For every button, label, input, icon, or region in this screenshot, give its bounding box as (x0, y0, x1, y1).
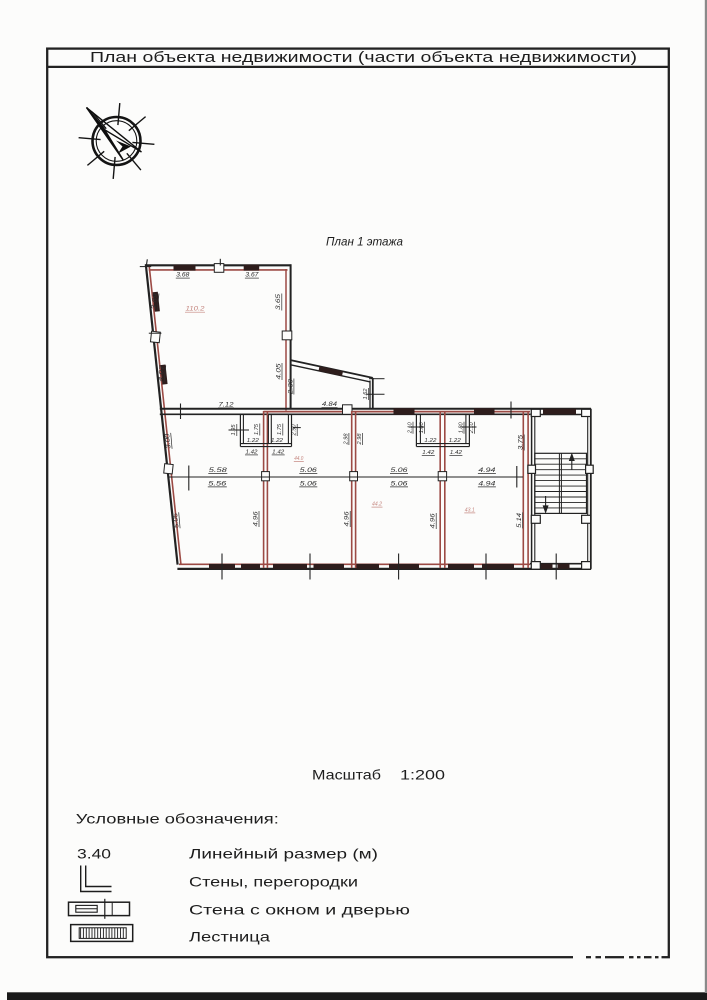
svg-text:4.96: 4.96 (252, 511, 259, 527)
svg-text:Стена с окном и дверью: Стена с окном и дверью (189, 902, 410, 918)
svg-text:4.94: 4.94 (478, 480, 495, 487)
svg-text:3.40: 3.40 (77, 847, 111, 862)
svg-text:5.06: 5.06 (300, 467, 317, 474)
svg-text:Условные обозначения:: Условные обозначения: (76, 811, 279, 827)
svg-text:2.98: 2.98 (357, 433, 363, 445)
svg-text:1.95: 1.95 (231, 424, 237, 435)
svg-text:1:200: 1:200 (400, 767, 445, 783)
svg-text:1.75: 1.75 (254, 424, 260, 435)
svg-text:2.90: 2.90 (292, 424, 298, 436)
svg-text:3.67: 3.67 (245, 272, 258, 279)
svg-text:1.22: 1.22 (424, 438, 437, 444)
svg-text:1.22: 1.22 (247, 438, 260, 444)
svg-text:2.10: 2.10 (469, 422, 475, 434)
svg-text:1.80: 1.80 (419, 422, 425, 433)
svg-text:1.22: 1.22 (271, 438, 284, 444)
svg-text:3.68: 3.68 (176, 272, 189, 279)
svg-text:1.80: 1.80 (458, 422, 464, 433)
svg-text:Стены, перегородки: Стены, перегородки (189, 874, 358, 890)
svg-text:7.12: 7.12 (219, 401, 234, 408)
svg-text:44.0: 44.0 (294, 456, 304, 462)
svg-text:Линейный размер (м): Линейный размер (м) (189, 846, 378, 862)
svg-text:43.1: 43.1 (465, 507, 475, 513)
svg-text:4.84: 4.84 (322, 401, 337, 408)
svg-text:1.62: 1.62 (363, 389, 369, 400)
svg-text:План 1 этажа: План 1 этажа (326, 236, 404, 249)
svg-text:44.2: 44.2 (372, 502, 383, 508)
svg-text:2.98: 2.98 (343, 433, 349, 445)
svg-text:3.65: 3.65 (275, 294, 282, 310)
svg-text:110.2: 110.2 (186, 306, 206, 313)
svg-text:1.42: 1.42 (450, 450, 463, 456)
svg-text:Масштаб: Масштаб (312, 767, 381, 783)
svg-text:3.75: 3.75 (518, 434, 525, 450)
svg-text:1.22: 1.22 (449, 438, 462, 444)
svg-text:5.06: 5.06 (300, 480, 317, 487)
svg-text:4.96: 4.96 (344, 511, 351, 527)
svg-text:5.58: 5.58 (209, 467, 227, 474)
svg-text:4.05: 4.05 (275, 363, 282, 379)
svg-text:5.14: 5.14 (516, 512, 523, 528)
svg-text:1.75: 1.75 (277, 424, 283, 435)
svg-text:Лестница: Лестница (189, 929, 270, 945)
svg-text:4.96: 4.96 (430, 513, 437, 529)
svg-text:4.94: 4.94 (478, 467, 495, 474)
svg-text:2.39: 2.39 (287, 378, 294, 395)
svg-text:5.56: 5.56 (208, 480, 226, 487)
svg-text:5.06: 5.06 (391, 467, 408, 474)
svg-text:1.42: 1.42 (246, 449, 259, 455)
svg-text:1.42: 1.42 (272, 449, 285, 455)
svg-text:1.42: 1.42 (422, 450, 435, 456)
svg-text:5.06: 5.06 (391, 480, 408, 487)
svg-text:План объекта недвижимости (час: План объекта недвижимости (части объекта… (90, 49, 637, 66)
svg-text:2.10: 2.10 (407, 422, 413, 434)
